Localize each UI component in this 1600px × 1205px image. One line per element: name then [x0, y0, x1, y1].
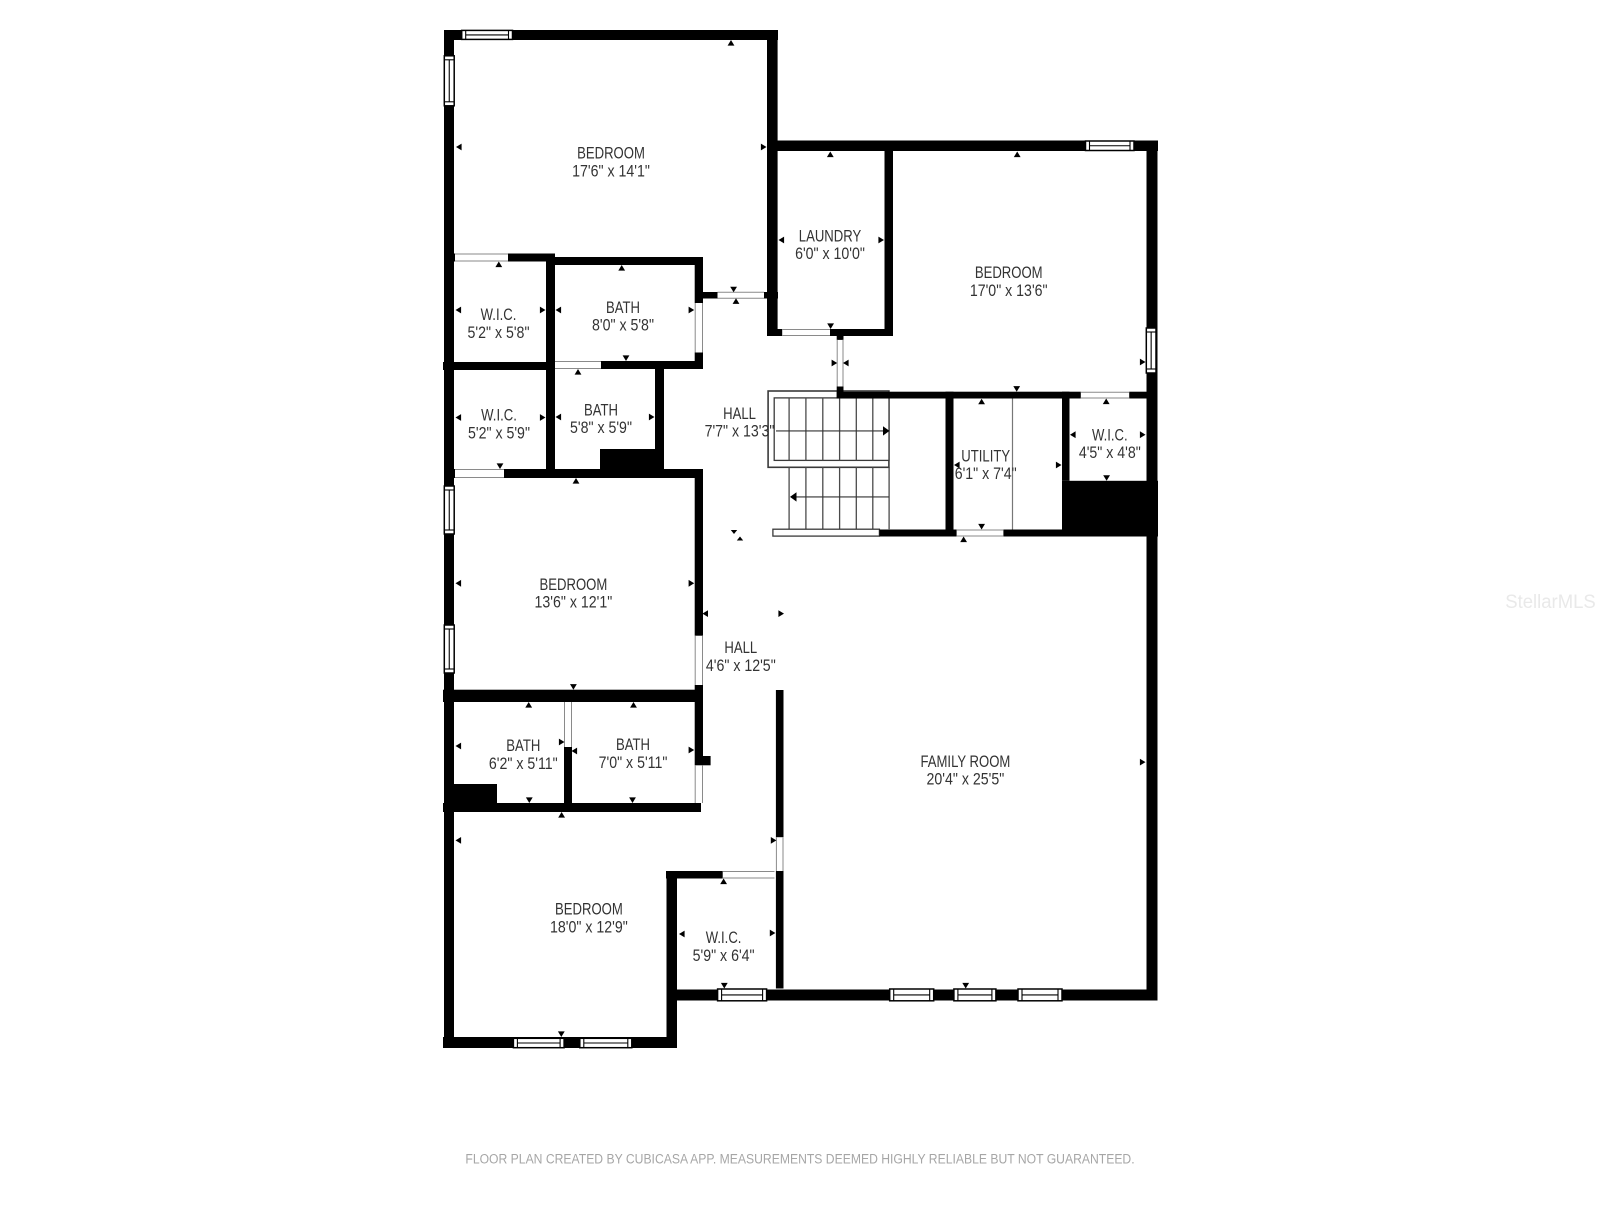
svg-text:StellarMLS: StellarMLS [1505, 592, 1596, 614]
svg-text:8'0" x 5'8": 8'0" x 5'8" [592, 317, 654, 335]
svg-text:W.I.C.: W.I.C. [1092, 427, 1128, 445]
svg-text:6'2" x 5'11": 6'2" x 5'11" [489, 755, 558, 773]
svg-text:BATH: BATH [616, 737, 650, 755]
svg-text:FLOOR PLAN CREATED BY CUBICASA: FLOOR PLAN CREATED BY CUBICASA APP. MEAS… [465, 1151, 1134, 1167]
svg-text:6'1" x 7'4": 6'1" x 7'4" [955, 465, 1017, 483]
svg-text:5'9" x 6'4": 5'9" x 6'4" [693, 947, 755, 965]
svg-text:5'2" x 5'9": 5'2" x 5'9" [468, 425, 530, 443]
svg-text:UTILITY: UTILITY [961, 448, 1010, 466]
svg-text:BATH: BATH [584, 402, 618, 420]
svg-text:BEDROOM: BEDROOM [540, 577, 608, 595]
svg-text:LAUNDRY: LAUNDRY [799, 228, 862, 246]
svg-text:W.I.C.: W.I.C. [706, 930, 742, 948]
svg-text:20'4" x 25'5": 20'4" x 25'5" [927, 771, 1005, 789]
svg-text:BEDROOM: BEDROOM [975, 265, 1043, 283]
svg-text:7'0" x 5'11": 7'0" x 5'11" [599, 754, 668, 772]
svg-text:7'7" x 13'3": 7'7" x 13'3" [705, 423, 775, 441]
svg-text:BEDROOM: BEDROOM [555, 901, 623, 919]
svg-text:W.I.C.: W.I.C. [481, 407, 517, 425]
svg-text:6'0" x 10'0": 6'0" x 10'0" [795, 245, 865, 263]
svg-text:BATH: BATH [606, 300, 640, 318]
svg-text:5'2" x 5'8": 5'2" x 5'8" [468, 324, 530, 342]
svg-text:17'6" x 14'1": 17'6" x 14'1" [572, 163, 650, 181]
svg-text:4'5" x 4'8": 4'5" x 4'8" [1079, 444, 1141, 462]
svg-text:18'0" x 12'9": 18'0" x 12'9" [550, 919, 628, 937]
svg-text:FAMILY ROOM: FAMILY ROOM [920, 754, 1010, 772]
svg-text:17'0" x 13'6": 17'0" x 13'6" [970, 282, 1048, 300]
svg-text:W.I.C.: W.I.C. [481, 307, 517, 325]
svg-text:BEDROOM: BEDROOM [577, 145, 645, 163]
svg-text:HALL: HALL [723, 406, 756, 424]
svg-text:BATH: BATH [506, 738, 540, 756]
svg-text:HALL: HALL [724, 640, 757, 658]
svg-text:5'8" x 5'9": 5'8" x 5'9" [570, 419, 632, 437]
svg-text:13'6" x 12'1": 13'6" x 12'1" [535, 594, 613, 612]
svg-text:4'6" x 12'5": 4'6" x 12'5" [706, 657, 776, 675]
